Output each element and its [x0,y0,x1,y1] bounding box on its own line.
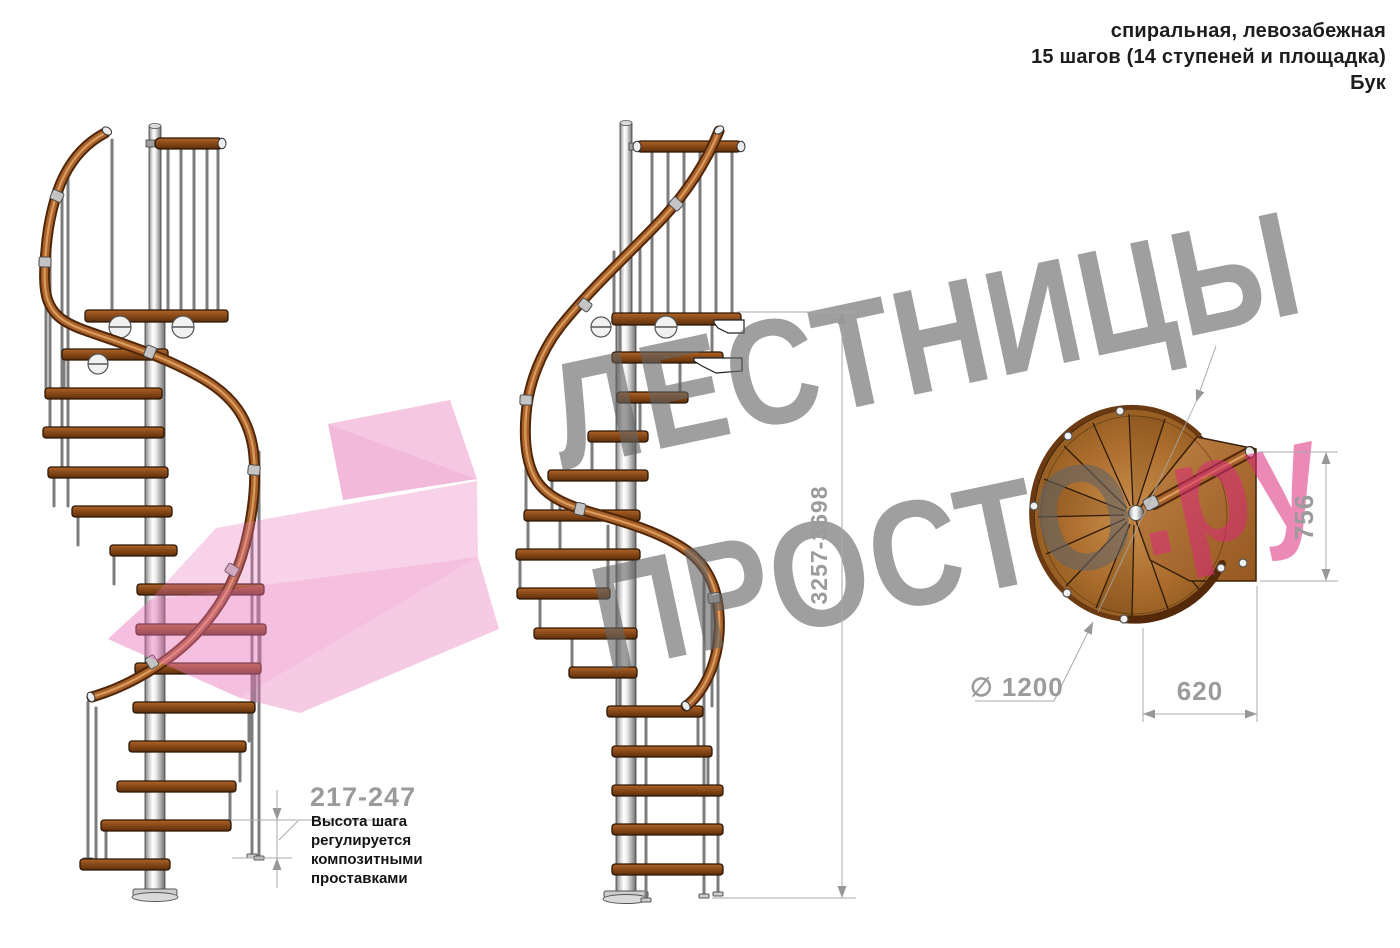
title-steps: 15 шагов (14 ступеней и площадка) [1031,44,1386,70]
dim-total-height: 3257-3698 [712,312,856,898]
dim-diameter: ∅ 1200 [970,620,1097,702]
title-type: спиральная, левозабежная [1031,18,1386,44]
title-material: Бук [1031,70,1386,96]
note-line-4: проставками [311,869,423,888]
dim-landing-depth: 620 [1143,586,1257,722]
plan-pointer-line [1098,346,1216,612]
dim-landing-depth-label: 620 [1177,676,1223,706]
dimension-annotations: 3257-3698 217-247 ∅ 1200 620 [0,0,1400,948]
title-block: спиральная, левозабежная 15 шагов (14 ст… [1031,18,1386,96]
dim-diameter-label: ∅ 1200 [970,672,1064,702]
dim-landing-width: 756 [1258,452,1338,581]
drawing-sheet: ЛЕСТНИЦЫ ПРОСТО.ру 3257-3698 217-247 [0,0,1400,948]
dim-landing-width-label: 756 [1289,494,1319,540]
note-line-2: регулируется [311,831,423,850]
note-line-3: композитными [311,850,423,869]
dim-step-height-label: 217-247 [310,782,416,812]
note-line-1: Высота шага [311,812,423,831]
dim-total-height-label: 3257-3698 [806,486,832,605]
step-height-note: Высота шага регулируется композитными пр… [311,812,423,888]
